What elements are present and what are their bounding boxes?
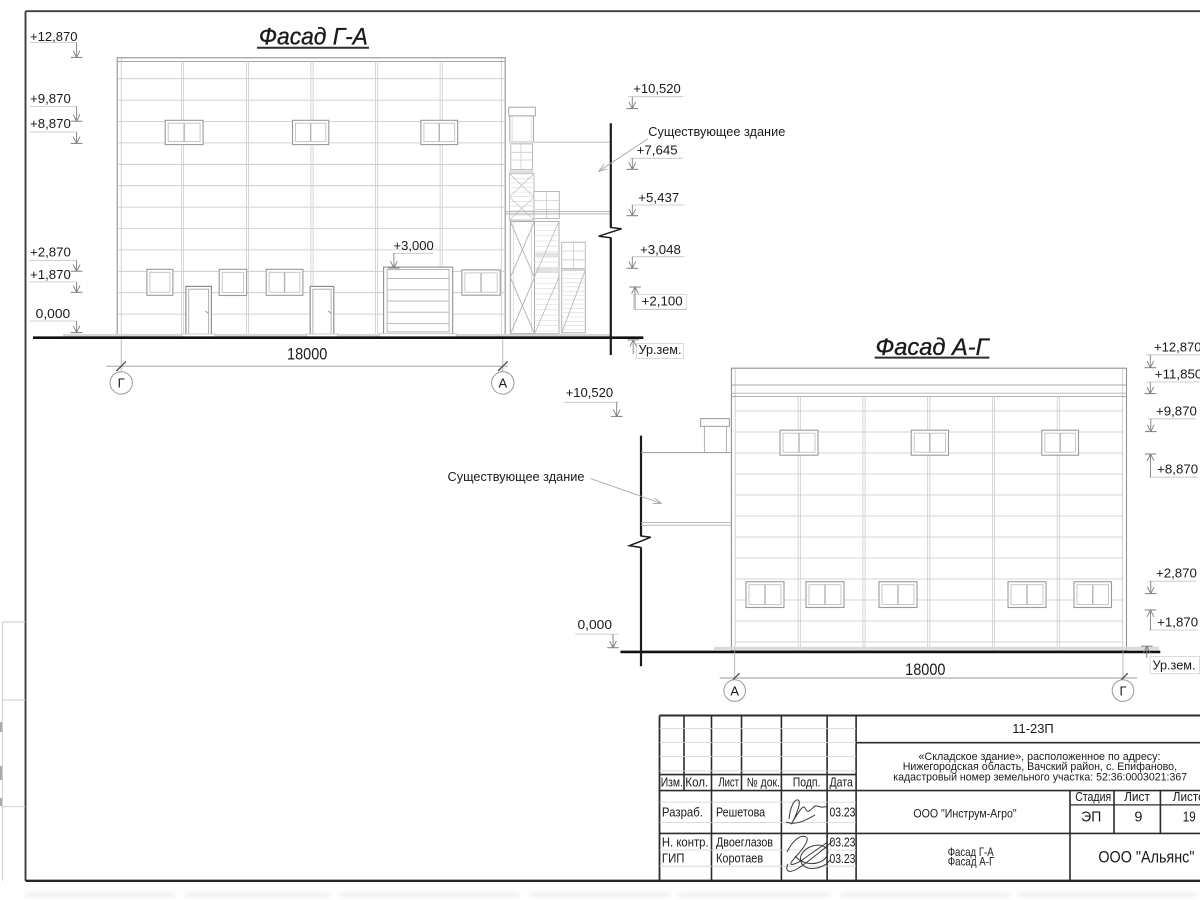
svg-text:Ур.зем.: Ур.зем. <box>639 342 682 357</box>
svg-text:+9,870: +9,870 <box>30 91 71 106</box>
svg-text:18000: 18000 <box>905 660 945 679</box>
svg-text:+3,000: +3,000 <box>394 238 434 253</box>
svg-text:+2,100: +2,100 <box>642 294 683 309</box>
svg-text:Стадия: Стадия <box>1075 790 1111 804</box>
svg-text:№ док.: № док. <box>747 776 780 790</box>
svg-text:03.23: 03.23 <box>830 852 856 866</box>
svg-text:кадастровый номер земельного у: кадастровый номер земельного участка: 52… <box>893 772 1187 784</box>
svg-text:+9,870: +9,870 <box>1156 403 1197 418</box>
svg-text:Г: Г <box>118 376 125 391</box>
svg-text:+8,870: +8,870 <box>30 116 71 131</box>
svg-text:+3,048: +3,048 <box>640 242 681 257</box>
svg-text:Фасад А-Г: Фасад А-Г <box>948 856 995 869</box>
svg-text:Решетова: Решетова <box>716 805 765 819</box>
svg-text:0,000: 0,000 <box>578 617 613 632</box>
svg-text:+8,870: +8,870 <box>1157 462 1198 477</box>
svg-text:ГИП: ГИП <box>662 852 685 866</box>
svg-text:Лист: Лист <box>718 776 739 790</box>
svg-text:+7,645: +7,645 <box>637 143 678 158</box>
svg-text:Г: Г <box>1119 683 1126 698</box>
svg-text:Существующее здание: Существующее здание <box>648 124 785 139</box>
svg-text:Ур.зем.: Ур.зем. <box>1153 657 1196 672</box>
svg-text:Кол.: Кол. <box>685 776 708 790</box>
svg-text:А: А <box>498 376 507 391</box>
svg-text:+12,870: +12,870 <box>1154 339 1200 354</box>
svg-text:11-23П: 11-23П <box>1012 722 1054 736</box>
svg-text:Лист: Лист <box>1124 790 1150 804</box>
svg-text:Подп.: Подп. <box>793 776 821 790</box>
svg-text:Двоеглазов: Двоеглазов <box>716 836 773 850</box>
svg-text:+2,870: +2,870 <box>30 245 71 260</box>
svg-text:+2,870: +2,870 <box>1156 565 1197 580</box>
svg-text:Коротаев: Коротаев <box>716 852 764 866</box>
svg-text:Дата: Дата <box>830 776 853 790</box>
svg-text:ООО "Альянс": ООО "Альянс" <box>1098 849 1194 867</box>
svg-text:Разраб.: Разраб. <box>662 805 703 819</box>
svg-text:03.23: 03.23 <box>830 836 856 850</box>
svg-text:+10,520: +10,520 <box>566 385 614 400</box>
svg-text:Н. контр.: Н. контр. <box>662 836 709 850</box>
svg-text:Листов: Листов <box>1173 790 1200 804</box>
svg-text:19: 19 <box>1183 810 1196 826</box>
svg-text:+11,850: +11,850 <box>1155 366 1200 381</box>
svg-text:+1,870: +1,870 <box>30 267 71 282</box>
svg-text:9: 9 <box>1134 810 1142 826</box>
svg-text:ООО "Инструм-Агро": ООО "Инструм-Агро" <box>913 807 1016 820</box>
svg-text:+5,437: +5,437 <box>638 190 679 205</box>
svg-text:+10,520: +10,520 <box>633 81 681 96</box>
svg-text:ЭП: ЭП <box>1081 810 1101 826</box>
svg-text:Фасад Г-А: Фасад Г-А <box>259 24 368 51</box>
svg-text:+12,870: +12,870 <box>30 29 78 44</box>
svg-text:+1,870: +1,870 <box>1157 614 1198 629</box>
svg-text:Изм.: Изм. <box>661 776 683 790</box>
svg-text:Существующее здание: Существующее здание <box>448 469 585 484</box>
svg-text:18000: 18000 <box>287 345 327 364</box>
svg-text:А: А <box>730 683 739 698</box>
svg-text:0,000: 0,000 <box>36 306 70 321</box>
svg-text:03.23: 03.23 <box>830 805 856 819</box>
